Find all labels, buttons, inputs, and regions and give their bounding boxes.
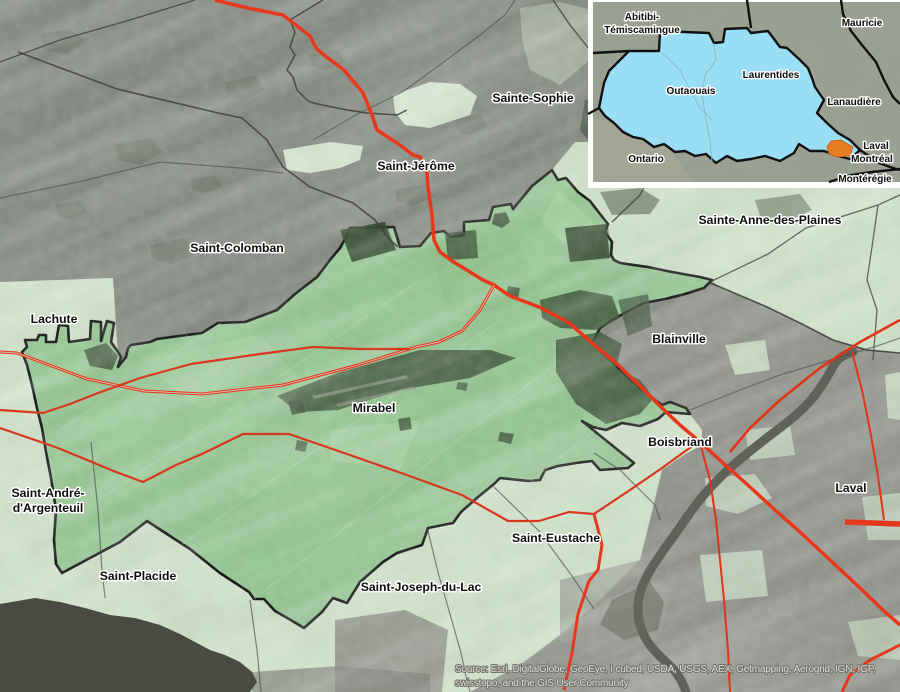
svg-text:Sainte-Anne-des-Plaines: Sainte-Anne-des-Plaines (699, 213, 842, 227)
svg-text:Lachute: Lachute (31, 312, 78, 326)
svg-text:Témiscamingue: Témiscamingue (604, 25, 680, 36)
svg-text:Mirabel: Mirabel (353, 401, 396, 415)
svg-text:Laval: Laval (835, 481, 866, 495)
svg-text:Abitibi-: Abitibi- (625, 12, 659, 23)
svg-text:Saint-Eustache: Saint-Eustache (512, 531, 600, 545)
svg-text:Mauricie: Mauricie (842, 18, 883, 29)
svg-text:Saint-Joseph-du-Lac: Saint-Joseph-du-Lac (361, 580, 482, 594)
svg-text:Laurentides: Laurentides (743, 70, 800, 81)
svg-text:Laval: Laval (863, 141, 889, 152)
svg-text:Sainte-Sophie: Sainte-Sophie (492, 91, 573, 105)
svg-text:Saint-André-: Saint-André- (11, 486, 84, 500)
svg-text:Blainville: Blainville (652, 332, 706, 346)
svg-text:Montréal: Montréal (851, 154, 893, 165)
svg-text:Ontario: Ontario (628, 154, 664, 165)
svg-text:Saint-Placide: Saint-Placide (100, 569, 177, 583)
svg-text:Montérégie: Montérégie (838, 174, 892, 185)
svg-text:Source: Esri, DigitalGlobe, Ge: Source: Esri, DigitalGlobe, GeoEye, i-cu… (455, 664, 876, 675)
svg-text:Saint-Colomban: Saint-Colomban (190, 241, 283, 255)
svg-text:Lanaudière: Lanaudière (827, 97, 881, 108)
svg-text:swisstopo, and the GIS User Co: swisstopo, and the GIS User Community (455, 678, 629, 689)
svg-text:d'Argenteuil: d'Argenteuil (13, 501, 84, 515)
svg-text:Saint-Jérôme: Saint-Jérôme (377, 159, 454, 173)
svg-text:Outaouais: Outaouais (667, 86, 716, 97)
svg-text:Boisbriand: Boisbriand (648, 435, 712, 449)
